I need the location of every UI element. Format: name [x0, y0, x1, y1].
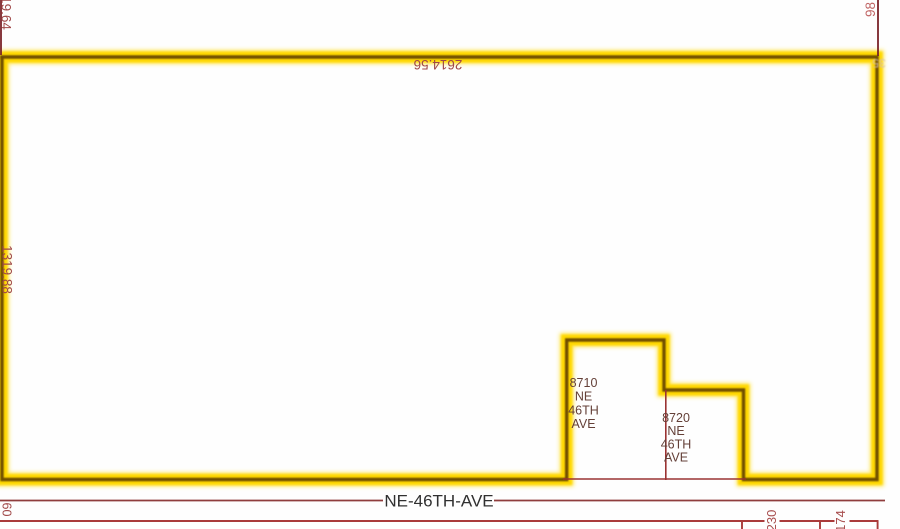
svg-text:AVE: AVE [664, 450, 688, 464]
svg-text:35: 35 [872, 56, 886, 70]
svg-text:46TH: 46TH [568, 403, 599, 417]
svg-text:NE: NE [575, 390, 592, 404]
svg-text:1319.88: 1319.88 [0, 245, 15, 294]
svg-text:2614.56: 2614.56 [414, 57, 463, 72]
svg-text:AVE: AVE [571, 417, 595, 431]
svg-text:NE-46TH-AVE: NE-46TH-AVE [384, 492, 493, 511]
svg-text:19.64: 19.64 [0, 0, 14, 30]
svg-text:174: 174 [833, 510, 848, 529]
svg-text:8710: 8710 [570, 376, 598, 390]
svg-text:98: 98 [863, 2, 878, 17]
svg-text:230: 230 [764, 510, 779, 529]
svg-text:NE: NE [667, 424, 684, 438]
svg-text:60: 60 [0, 503, 14, 517]
